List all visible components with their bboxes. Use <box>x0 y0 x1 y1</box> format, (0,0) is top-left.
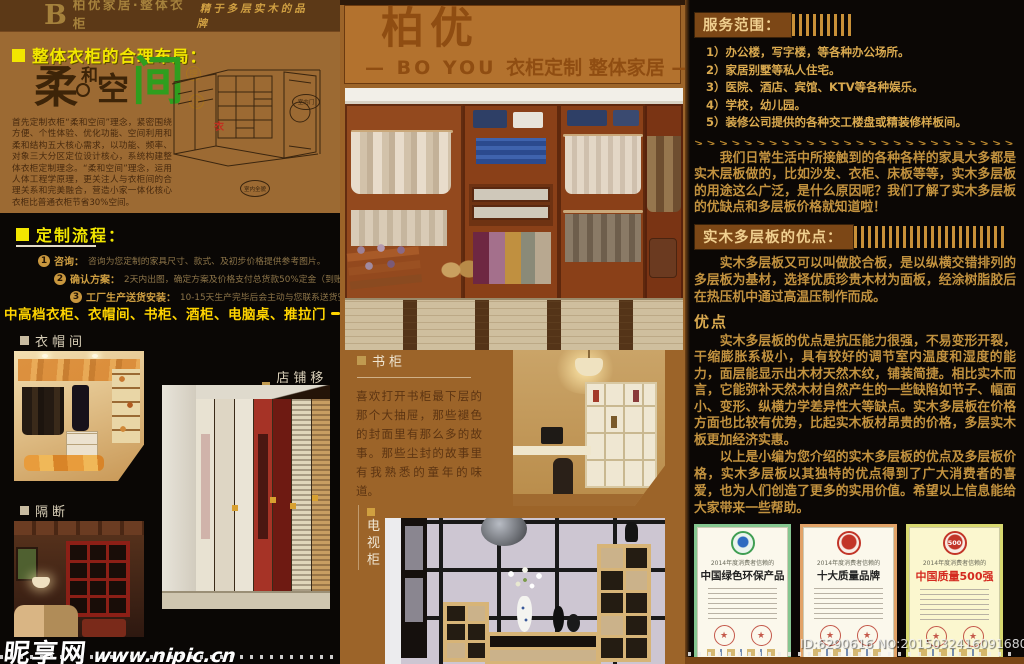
product-categories-banner: 中高档衣柜、衣帽间、书柜、酒柜、电脑桌、推拉门 <box>0 303 340 323</box>
bookcase-paragraph: 喜欢打开书柜最下层的那个大抽屉，那些褪色的封面里有那么多的故事。那些尘封的故事里… <box>356 387 482 501</box>
step-label: 咨询： <box>54 253 84 268</box>
step-number-badge: 1 <box>38 255 50 267</box>
layout-section-panel: 整体衣柜的合理布局： 柔 和 空 间 理 念 <box>0 32 340 213</box>
partition-photo <box>14 521 144 637</box>
bottom-brown-band <box>685 657 1024 664</box>
bookcase-divider-line <box>357 377 471 378</box>
process-step-1: 1 咨询： 咨询为您定制的家具尺寸、款式、及初步价格提供参考图片。 <box>38 253 326 268</box>
service-scope-heading: 服务范围： <box>694 12 792 38</box>
certificate-title: 中国质量500强 <box>916 568 994 584</box>
certificate-title: 中国绿色环保产品 <box>701 568 785 583</box>
step-number-badge: 3 <box>70 291 82 303</box>
wardrobe-line-drawing <box>168 54 336 182</box>
service-item: 1）办公楼，写字楼，等各种办公场所。 <box>694 44 1016 62</box>
walkin-wardrobe-main-photo <box>345 88 683 350</box>
square-bullet-icon <box>12 49 25 62</box>
right-column-content: 服务范围： 1）办公楼，写字楼，等各种办公场所。 2）家居别墅等私人住宅。 3）… <box>694 0 1016 664</box>
service-item: 3）医院、酒店、宾馆、KTV等各种娱乐。 <box>694 79 1016 97</box>
process-step-2: 2 确认方案： 2天内出图，确定方案及价格支付总货款50%定金（到账）。 <box>54 271 356 286</box>
advantage-subheading: 优点 <box>694 311 1016 332</box>
art-ring-icon <box>76 83 90 97</box>
partition-label-text: 隔断 <box>35 501 69 520</box>
step-text: 咨询为您定制的家具尺寸、款式、及初步价格提供参考图片。 <box>88 254 326 267</box>
layout-paragraph: 首先定制衣柜“柔和空间”理念，紧密围绕方便、个性体验、优化功能、空间利用和柔和结… <box>12 118 172 209</box>
brand-name-cn: 柏优家居·整体衣柜 <box>73 0 199 32</box>
tv-label-char: 电 <box>367 520 380 533</box>
fold-shadow-strip <box>685 0 690 664</box>
banner-text: 中高档衣柜、衣帽间、书柜、酒柜、电脑桌、推拉门 <box>4 303 326 323</box>
square-bullet-icon <box>367 508 375 516</box>
certificate-seal-icon: 500 <box>943 531 967 555</box>
service-item: 5）装修公司提供的各种交工楼盘或精装修样板间。 <box>694 114 1016 132</box>
tv-label-char: 柜 <box>367 554 380 567</box>
square-bullet-icon <box>357 356 366 365</box>
brand-slogan: 精于多层实木的品牌 <box>196 1 323 31</box>
bottom-dotted-strip-right <box>688 652 1018 656</box>
process-step-3: 3 工厂生产送货安装： 10-15天生产完毕后会主动与您联系送货安装时间。 <box>70 289 382 304</box>
service-scope-list: 1）办公楼，写字楼，等各种办公场所。 2）家居别墅等私人住宅。 3）医院、酒店、… <box>694 44 1016 132</box>
walkin-closet-label: 衣帽间 <box>20 331 86 350</box>
square-bullet-icon <box>16 228 29 241</box>
step-text: 2天内出图，确定方案及价格支付总货款50%定金（到账）。 <box>124 272 356 285</box>
bottom-dotted-strip-left <box>0 655 340 659</box>
drawing-bubble-room: 室内全貌 <box>240 180 270 197</box>
walkin-closet-label-text: 衣帽间 <box>35 331 86 350</box>
square-bullet-icon <box>20 336 29 345</box>
service-item: 2）家居别墅等私人住宅。 <box>694 62 1016 80</box>
certificate-body-lines <box>708 588 776 620</box>
step-number-badge: 2 <box>54 273 66 285</box>
brand-subtitle-en: — BO YOU <box>365 57 506 79</box>
plywood-definition-paragraph: 实木多层板又可以叫做胶合板，是以纵横交错排列的多层板为基材，选择优质珍贵木材为面… <box>694 255 1016 306</box>
certificate-stamps <box>714 625 772 646</box>
red-seal-icon <box>714 625 735 646</box>
stock-id-watermark: ID:6290616 NO:20150324160916803000 <box>800 636 1024 651</box>
walkin-closet-photo <box>14 351 144 481</box>
shop-sliding-door-photo <box>162 385 330 609</box>
certificate-year-line: 2014年度消费者信赖的 <box>711 558 774 567</box>
bookcase-label: 书柜 <box>357 351 406 370</box>
certificate-year-line: 2014年度消费者信赖的 <box>817 558 880 567</box>
advantage-summary-paragraph: 以上是小编为您介绍的实木多层板的优点及多层板价格，实木多层板以其独特的优点得到了… <box>694 449 1016 517</box>
art-char-kong: 空 <box>97 73 129 105</box>
certificate-body-lines <box>814 588 882 620</box>
barcode-stripes-icon <box>792 14 854 36</box>
process-heading: 定制流程： <box>16 222 126 246</box>
nipic-watermark: 昵享网 www.nipic.cn <box>2 633 238 664</box>
tv-label-char: 视 <box>367 537 380 550</box>
advantage-detail-paragraph: 实木多层板的优点是抗压能力很强，不易变形开裂，干缩膨胀系极小，具有较好的调节室内… <box>694 334 1016 450</box>
plywood-advantage-heading: 实木多层板的优点： <box>694 224 854 250</box>
drawing-mini-logo: 衣 <box>214 118 224 133</box>
process-underline <box>16 245 96 247</box>
left-topbar: B 柏优家居·整体衣柜 BO YOU JIA JU ZHENG TI YI GU… <box>0 0 340 32</box>
step-label: 确认方案： <box>70 271 120 286</box>
certificate-green-environmental: 2014年度消费者信赖的 中国绿色环保产品 <box>694 524 791 664</box>
arrow-divider-row: >>>>>>>>>>>>>>>>>>>>>>>>>>>>>>>> <box>694 137 1016 145</box>
plywood-advantage-header-bar: 实木多层板的优点： <box>694 226 1016 248</box>
brochure-canvas: B 柏优家居·整体衣柜 BO YOU JIA JU ZHENG TI YI GU… <box>0 0 1024 664</box>
service-item: 4）学校，幼儿园。 <box>694 97 1016 115</box>
tv-cabinet-label: 电 视 柜 <box>358 505 380 570</box>
drawing-mini-logo-char: 衣 <box>214 122 224 133</box>
certificate-seal-icon <box>837 531 861 555</box>
square-bullet-icon <box>20 506 29 515</box>
brand-title: 柏优 <box>381 6 680 53</box>
process-heading-text: 定制流程： <box>36 222 126 246</box>
certificate-body-lines <box>920 589 988 621</box>
certificate-seal-icon <box>731 531 755 555</box>
partition-label: 隔断 <box>20 501 69 520</box>
step-label: 工厂生产送货安装： <box>86 289 176 304</box>
service-scope-header-bar: 服务范围： <box>694 14 1016 36</box>
certificate-year-line: 2014年度消费者信赖的 <box>923 558 986 567</box>
middle-brand-header: 柏优 — BO YOU 衣柜定制 整体家居 — <box>344 5 681 84</box>
tv-cabinet-photo <box>385 518 665 664</box>
red-seal-icon <box>751 625 772 646</box>
art-char-rou: 柔 <box>34 66 78 110</box>
drawing-bubble-door: 室内门 <box>292 94 320 110</box>
bookcase-photo <box>513 350 665 506</box>
brand-logo-letter: B <box>44 2 67 29</box>
plywood-intro-paragraph: 我们日常生活中所接触到的各种各样的家具大多都是实木层板做的，比如沙发、衣柜、床板… <box>694 151 1016 217</box>
bookcase-label-text: 书柜 <box>372 351 406 370</box>
certificate-title: 十大质量品牌 <box>817 568 880 583</box>
brand-subtitle-cn: 衣柜定制 整体家居 — <box>506 57 690 79</box>
barcode-stripes-icon <box>854 226 1004 248</box>
nipic-site-name: 昵享网 <box>2 633 90 664</box>
left-black-zone: 定制流程： 1 咨询： 咨询为您定制的家具尺寸、款式、及初步价格提供参考图片。 … <box>0 213 340 664</box>
seal-text: 500 <box>948 539 962 547</box>
brand-subtitle: — BO YOU 衣柜定制 整体家居 — <box>365 53 680 80</box>
